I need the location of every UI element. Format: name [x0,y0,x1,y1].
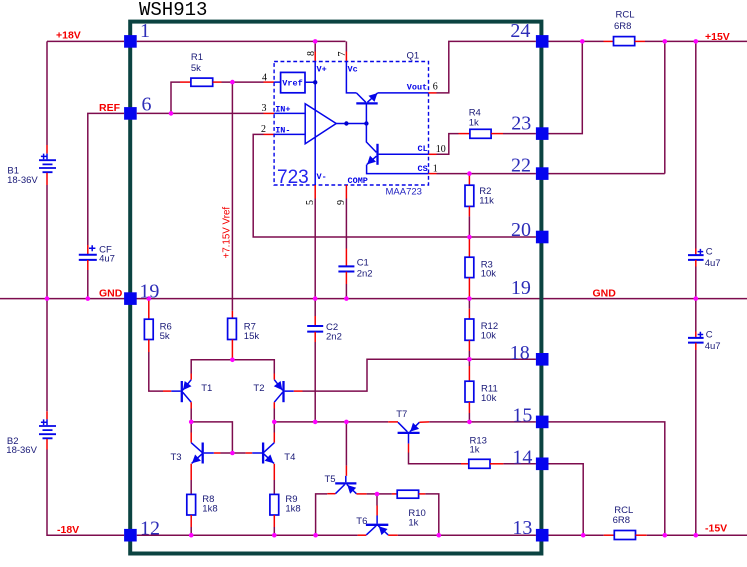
svg-text:-18V: -18V [57,524,79,536]
svg-text:6: 6 [142,94,152,116]
svg-text:T1: T1 [201,383,212,394]
svg-text:8: 8 [306,51,317,56]
svg-text:18-36V: 18-36V [7,175,38,186]
svg-text:1k: 1k [469,117,479,128]
svg-text:723: 723 [277,167,309,188]
svg-text:10k: 10k [481,331,497,342]
svg-text:5k: 5k [160,331,170,342]
svg-text:12: 12 [140,517,160,539]
svg-text:15: 15 [512,405,532,427]
svg-text:6R8: 6R8 [614,21,631,32]
svg-text:22: 22 [511,154,531,176]
svg-text:19: 19 [511,277,531,299]
svg-text:10k: 10k [481,268,497,279]
svg-text:6R8: 6R8 [613,515,630,526]
svg-text:T7: T7 [396,409,407,420]
svg-text:9: 9 [336,200,347,205]
svg-text:1: 1 [433,163,438,174]
svg-text:4u7: 4u7 [705,341,721,352]
svg-text:GND: GND [99,288,123,300]
svg-text:1k: 1k [470,445,480,456]
svg-text:V+: V+ [317,65,327,75]
svg-text:Vref: Vref [282,79,302,89]
svg-text:T5: T5 [325,474,336,485]
svg-text:10: 10 [436,144,446,155]
svg-text:6: 6 [433,82,438,93]
svg-text:C1: C1 [357,257,369,268]
svg-text:1: 1 [140,20,150,42]
svg-text:Q1: Q1 [407,51,420,62]
svg-text:10k: 10k [481,393,497,404]
svg-text:24: 24 [510,20,530,42]
svg-text:T3: T3 [171,452,182,463]
svg-text:CS: CS [418,164,428,174]
svg-text:T6: T6 [356,516,367,527]
svg-text:18: 18 [510,342,530,364]
svg-text:GND: GND [593,288,617,300]
svg-text:3: 3 [262,103,267,114]
svg-text:V-: V- [317,172,327,182]
svg-text:COMP: COMP [348,176,368,186]
svg-text:1k: 1k [408,517,418,528]
svg-text:1k8: 1k8 [285,504,300,515]
svg-text:18-36V: 18-36V [6,445,37,456]
svg-text:2: 2 [261,124,266,135]
svg-text:4u7: 4u7 [99,254,115,265]
svg-text:+18V: +18V [56,30,81,42]
svg-text:4: 4 [262,73,267,84]
svg-text:+7.15V Vref: +7.15V Vref [222,207,233,259]
svg-text:2n2: 2n2 [357,268,373,279]
svg-text:REF: REF [99,102,121,114]
svg-text:1k8: 1k8 [202,504,217,515]
svg-text:5: 5 [305,200,316,205]
svg-text:T2: T2 [253,383,264,394]
svg-text:RCL: RCL [616,10,635,21]
svg-text:Vout: Vout [407,83,427,93]
svg-text:13: 13 [512,517,532,539]
svg-text:MAA723: MAA723 [386,187,422,198]
svg-text:2n2: 2n2 [326,332,342,343]
svg-text:-15V: -15V [705,522,727,534]
svg-text:WSH913: WSH913 [139,0,207,21]
svg-text:23: 23 [511,113,531,135]
svg-text:14: 14 [512,447,532,469]
svg-text:5k: 5k [191,63,201,74]
svg-text:CL: CL [418,144,428,154]
svg-text:19: 19 [139,280,159,302]
svg-text:15k: 15k [244,331,260,342]
svg-text:C: C [706,247,713,258]
svg-text:IN+: IN+ [275,105,290,115]
svg-text:T4: T4 [284,452,295,463]
svg-text:+15V: +15V [705,31,730,43]
svg-text:C: C [706,329,713,340]
svg-text:Vc: Vc [348,65,358,75]
svg-text:IN-: IN- [275,126,290,136]
svg-text:7: 7 [337,52,348,57]
svg-text:20: 20 [511,219,531,241]
svg-text:11k: 11k [479,196,494,207]
svg-text:R1: R1 [191,52,203,63]
svg-text:4u7: 4u7 [705,258,721,269]
